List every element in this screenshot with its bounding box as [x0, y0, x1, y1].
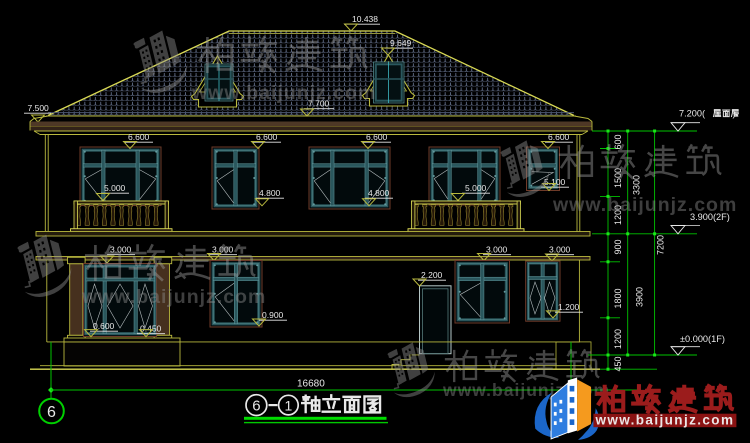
- svg-text:4.800: 4.800: [368, 188, 390, 198]
- svg-text:9.649: 9.649: [390, 38, 412, 48]
- svg-text:7.500: 7.500: [28, 103, 50, 113]
- svg-text:www.baijunjz.com: www.baijunjz.com: [552, 194, 737, 216]
- svg-text:): ): [733, 109, 736, 119]
- svg-text:www.baijunjz.com: www.baijunjz.com: [191, 82, 376, 104]
- svg-text:6: 6: [47, 404, 56, 421]
- svg-text:450: 450: [613, 356, 623, 371]
- svg-text:1200: 1200: [613, 329, 623, 349]
- svg-text:900: 900: [613, 239, 623, 254]
- svg-text:16680: 16680: [297, 379, 325, 390]
- svg-text:6.600: 6.600: [128, 132, 150, 142]
- svg-text:1: 1: [285, 397, 293, 413]
- svg-text:±0.000(1F): ±0.000(1F): [680, 334, 725, 344]
- svg-text:1.200: 1.200: [558, 302, 580, 312]
- svg-text:6.600: 6.600: [366, 132, 388, 142]
- svg-text:1800: 1800: [613, 288, 623, 308]
- svg-text:www.baijunjz.com: www.baijunjz.com: [594, 413, 734, 428]
- svg-text:7200: 7200: [655, 235, 665, 255]
- svg-text:3.000: 3.000: [549, 245, 571, 255]
- svg-text:5.000: 5.000: [104, 183, 126, 193]
- svg-text:6.600: 6.600: [256, 132, 278, 142]
- svg-text:3900: 3900: [634, 287, 644, 307]
- svg-text:10.438: 10.438: [352, 14, 378, 24]
- svg-text:www.baijunjz.com: www.baijunjz.com: [81, 286, 266, 308]
- svg-text:7.200(: 7.200(: [679, 109, 705, 119]
- svg-text:4.800: 4.800: [259, 188, 281, 198]
- svg-text:6: 6: [252, 398, 260, 415]
- svg-text:6.600: 6.600: [548, 132, 570, 142]
- svg-text:5.000: 5.000: [465, 183, 487, 193]
